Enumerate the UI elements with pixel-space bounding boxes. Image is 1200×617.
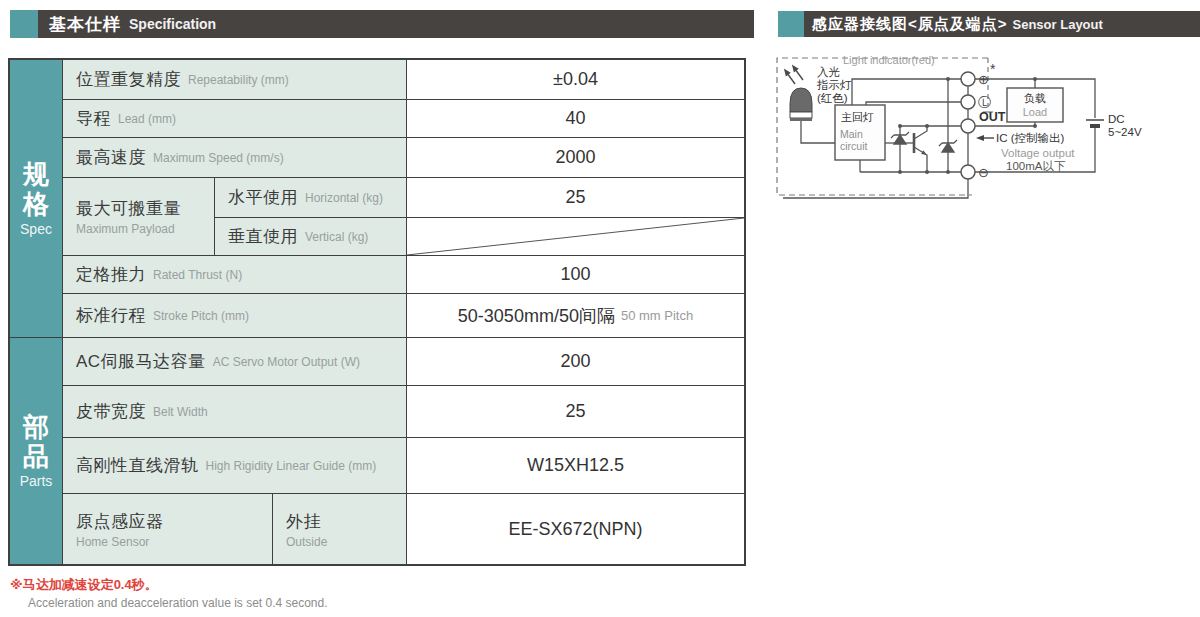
footnote-acceleration-zh: ※马达加减速设定0.4秒。 <box>10 576 158 594</box>
row-repeatability-value: ±0.04 <box>407 60 744 99</box>
row-rated-thrust-label: 定格推力 Rated Thrust (N) <box>63 256 406 293</box>
row-belt-width-label: 皮带宽度 Belt Width <box>63 386 406 437</box>
stroke-pitch-value-main: 50-3050mm/50间隔 <box>458 304 615 328</box>
row-home-sensor-label: 原点感应器 Home Sensor <box>63 494 272 564</box>
repeatability-en: Repeatability (mm) <box>188 73 289 87</box>
section-spec-zh: 规格 <box>22 160 50 218</box>
right-header-accent-square <box>778 11 804 37</box>
belt-width-zh: 皮带宽度 <box>76 400 146 423</box>
lead-en: Lead (mm) <box>118 112 176 126</box>
load-label-en: Load <box>1023 106 1047 118</box>
dc-label-line2: 5~24V <box>1108 126 1142 138</box>
row-payload-vertical-label: 垂直使用 Vertical (kg) <box>215 218 406 255</box>
payload-en: Maximum Payload <box>76 222 175 236</box>
row-payload-label: 最大可搬重量 Maximum Payload <box>63 178 214 255</box>
incident-light-label-1: 入光 <box>817 66 840 78</box>
home-sensor-en: Home Sensor <box>76 535 149 549</box>
footnote-acceleration-en: Acceleration and deacceleration value is… <box>28 596 328 610</box>
ic-output-label: IC (控制输出) <box>996 132 1065 144</box>
home-sensor-outside-en: Outside <box>286 535 327 549</box>
row-home-sensor-mount-label: 外挂 Outside <box>273 494 406 564</box>
current-limit-label: 100mA以下 <box>1006 160 1066 172</box>
row-servo-output-value: 200 <box>407 338 744 385</box>
stroke-pitch-zh: 标准行程 <box>76 304 146 327</box>
terminal-star-symbol: * <box>990 61 996 77</box>
home-sensor-zh: 原点感应器 <box>76 510 164 533</box>
payload-vertical-en: Vertical (kg) <box>305 230 368 244</box>
specification-table: 规格 Spec 部品 Parts 位置重复精度 Repeatability (m… <box>8 58 746 566</box>
rated-thrust-en: Rated Thrust (N) <box>153 268 242 282</box>
row-linear-guide-label: 高刚性直线滑轨 High Rigidity Linear Guide (mm) <box>63 438 406 493</box>
row-stroke-pitch-label: 标准行程 Stroke Pitch (mm) <box>63 294 406 337</box>
row-repeatability-label: 位置重复精度 Repeatability (mm) <box>63 60 406 99</box>
dc-label-line1: DC <box>1108 113 1125 125</box>
row-max-speed-value: 2000 <box>407 138 744 177</box>
terminal-out-label: OUT <box>979 110 1006 124</box>
incident-light-label-2: 指示灯 <box>816 79 852 91</box>
row-servo-output-label: AC伺服马达容量 AC Servo Motor Output (W) <box>63 338 406 385</box>
left-header-accent-square <box>10 10 38 38</box>
main-circuit-en1: Main <box>840 128 863 140</box>
main-circuit-en2: circuit <box>840 140 868 152</box>
terminal-l-symbol: Ⓛ <box>978 95 991 110</box>
row-lead-label: 导程 Lead (mm) <box>63 100 406 137</box>
sensor-layout-header-bar: 感应器接线图<原点及端点> Sensor Layout <box>804 11 1200 37</box>
incident-light-label-3: (红色) <box>817 92 848 104</box>
section-header-parts: 部品 Parts <box>10 338 62 564</box>
rated-thrust-zh: 定格推力 <box>76 263 146 286</box>
home-sensor-outside-zh: 外挂 <box>286 510 321 533</box>
specification-header-bar: 基本仕样 Specification <box>38 10 754 38</box>
row-linear-guide-value: W15XH12.5 <box>407 438 744 493</box>
row-belt-width-value: 25 <box>407 386 744 437</box>
stroke-pitch-value-en: 50 mm Pitch <box>621 308 693 323</box>
row-stroke-pitch-value: 50-3050mm/50间隔 50 mm Pitch <box>407 294 744 337</box>
max-speed-en: Maximum Speed (mm/s) <box>153 151 284 165</box>
payload-vertical-zh: 垂直使用 <box>228 225 298 248</box>
linear-guide-zh: 高刚性直线滑轨 <box>76 454 199 477</box>
row-payload-horizontal-label: 水平使用 Horizontal (kg) <box>215 178 406 217</box>
row-rated-thrust-value: 100 <box>407 256 744 293</box>
row-payload-vertical-value-na <box>407 218 744 255</box>
row-lead-value: 40 <box>407 100 744 137</box>
sensor-layout-title-zh: 感应器接线图<原点及端点> <box>812 15 1008 34</box>
servo-output-zh: AC伺服马达容量 <box>76 350 206 373</box>
section-header-spec: 规格 Spec <box>10 60 62 337</box>
servo-output-en: AC Servo Motor Output (W) <box>213 355 360 369</box>
repeatability-zh: 位置重复精度 <box>76 68 181 91</box>
main-circuit-zh: 主回灯 <box>841 111 874 123</box>
max-speed-zh: 最高速度 <box>76 146 146 169</box>
terminal-minus-symbol: ⊖ <box>978 165 989 180</box>
section-spec-en: Spec <box>20 221 52 237</box>
payload-zh: 最大可搬重量 <box>76 197 181 220</box>
row-payload-horizontal-value: 25 <box>407 178 744 217</box>
led-indicator-icon <box>790 88 812 121</box>
battery-icon <box>1086 120 1104 126</box>
voltage-output-label: Voltage output <box>1001 147 1075 159</box>
incident-light-arrows-icon <box>785 66 803 84</box>
specification-title-en: Specification <box>129 16 216 32</box>
specification-title-zh: 基本仕样 <box>49 13 121 36</box>
stroke-pitch-en: Stroke Pitch (mm) <box>153 309 249 323</box>
section-parts-zh: 部品 <box>22 413 50 471</box>
payload-horizontal-en: Horizontal (kg) <box>305 191 383 205</box>
sensor-wiring-diagram: 入光 指示灯 (红色) Light indicator(red) 主回灯 Mai… <box>775 48 1200 218</box>
linear-guide-en: High Rigidity Linear Guide (mm) <box>206 459 377 473</box>
terminal-plus-symbol: ⊕ <box>978 72 989 87</box>
lead-zh: 导程 <box>76 107 111 130</box>
load-label-zh: 负载 <box>1024 92 1046 104</box>
sensor-layout-title-en: Sensor Layout <box>1013 17 1103 32</box>
section-parts-en: Parts <box>20 473 53 489</box>
row-home-sensor-value: EE-SX672(NPN) <box>407 494 744 564</box>
payload-horizontal-zh: 水平使用 <box>228 186 298 209</box>
light-indicator-label-en: Light indicator(red) <box>843 54 935 66</box>
ic-arrow-icon <box>976 135 994 141</box>
row-max-speed-label: 最高速度 Maximum Speed (mm/s) <box>63 138 406 177</box>
not-applicable-diagonal-line <box>407 218 744 255</box>
belt-width-en: Belt Width <box>153 405 208 419</box>
